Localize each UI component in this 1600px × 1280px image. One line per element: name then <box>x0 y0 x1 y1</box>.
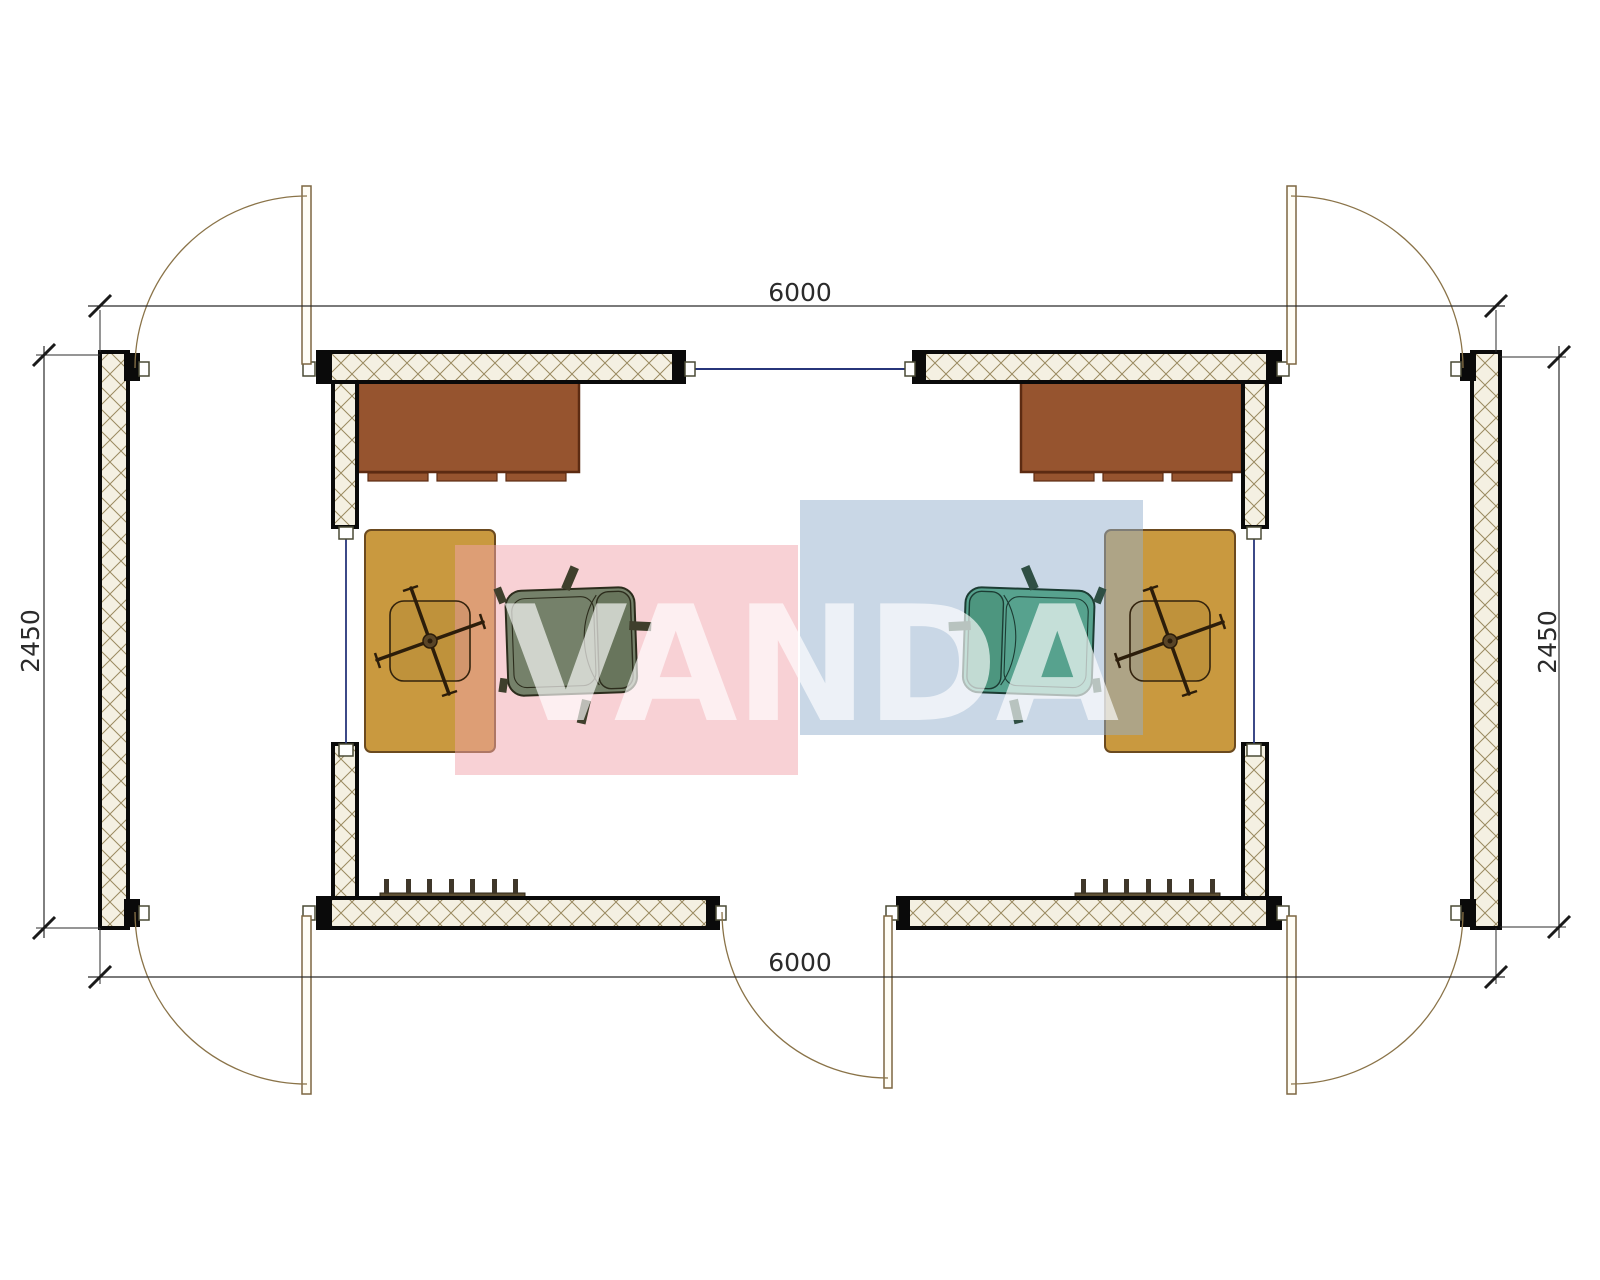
wall-top-right-cap-a <box>914 352 926 382</box>
radiator-left-fin <box>492 879 497 893</box>
door-jamb <box>1451 906 1461 920</box>
wall-left-cap-top <box>124 353 140 381</box>
radiator-left-fin <box>384 879 389 893</box>
partition-cap <box>1247 744 1261 756</box>
radiator-left-fin <box>449 879 454 893</box>
floor-plan-svg: VANDA6000600024502450 <box>0 0 1600 1280</box>
desk-right-drawer-tab <box>1103 473 1163 481</box>
door-jamb <box>716 906 726 920</box>
wall-top-left-cap-b <box>672 352 684 382</box>
partition-cap <box>1247 527 1261 539</box>
door-leaf-top-left <box>302 186 311 364</box>
radiator-right-fin <box>1167 879 1172 893</box>
desk-left-drawer-tab <box>437 473 497 481</box>
wall-left <box>100 352 128 928</box>
radiator-right-fin <box>1210 879 1215 893</box>
partition-cap <box>339 527 353 539</box>
desk-right-drawer-tab <box>1172 473 1232 481</box>
desk-right <box>1021 382 1242 472</box>
radiator-right-fin <box>1124 879 1129 893</box>
wall-bottom-left-segment <box>318 898 718 928</box>
window-jamb <box>685 362 695 376</box>
dim-label-right: 2450 <box>1533 610 1562 674</box>
desk-left <box>358 382 579 472</box>
radiator-right-fin <box>1189 879 1194 893</box>
desk-left-drawer-tab <box>368 473 428 481</box>
wall-top-right-segment <box>914 352 1280 382</box>
desk-right-drawer-tab <box>1034 473 1094 481</box>
desk-left-drawer-tab <box>506 473 566 481</box>
door-jamb <box>139 906 149 920</box>
window-jamb <box>905 362 915 376</box>
dim-label-bottom: 6000 <box>768 948 832 977</box>
office-chair-right-hub-pin <box>1168 639 1173 644</box>
wall-bottom-right-segment <box>898 898 1280 928</box>
door-jamb <box>139 362 149 376</box>
radiator-left-fin <box>406 879 411 893</box>
wall-bottom-left-cap-a <box>318 898 332 928</box>
partition-right-lower <box>1243 744 1267 898</box>
wall-top-left-cap-a <box>318 352 332 382</box>
watermark-text: VANDA <box>504 571 1120 758</box>
radiator-left-fin <box>427 879 432 893</box>
radiator-right-fin <box>1146 879 1151 893</box>
partition-cap <box>339 744 353 756</box>
door-leaf-top-right <box>1287 186 1296 364</box>
wall-bottom-right-cap-a <box>898 898 910 928</box>
wall-top-left-segment <box>318 352 684 382</box>
radiator-left-fin <box>513 879 518 893</box>
door-leaf-bottom-right <box>1287 916 1296 1094</box>
wall-left-cap-bottom <box>124 899 140 927</box>
dim-label-top: 6000 <box>768 278 832 307</box>
partition-left-lower <box>333 744 357 898</box>
office-chair-left-hub-pin <box>428 639 433 644</box>
door-leaf-bottom-left <box>302 916 311 1094</box>
radiator-right-fin <box>1081 879 1086 893</box>
door-jamb <box>1451 362 1461 376</box>
partition-right-upper <box>1243 382 1267 527</box>
door-leaf-bottom-center <box>884 916 892 1088</box>
floor-plan-image: VANDA6000600024502450 <box>0 0 1600 1280</box>
dim-label-left: 2450 <box>16 609 45 673</box>
partition-left-upper <box>333 382 357 527</box>
watermark-text: VANDA <box>504 571 1120 758</box>
radiator-right-fin <box>1103 879 1108 893</box>
radiator-left-fin <box>470 879 475 893</box>
wall-right <box>1472 352 1500 928</box>
